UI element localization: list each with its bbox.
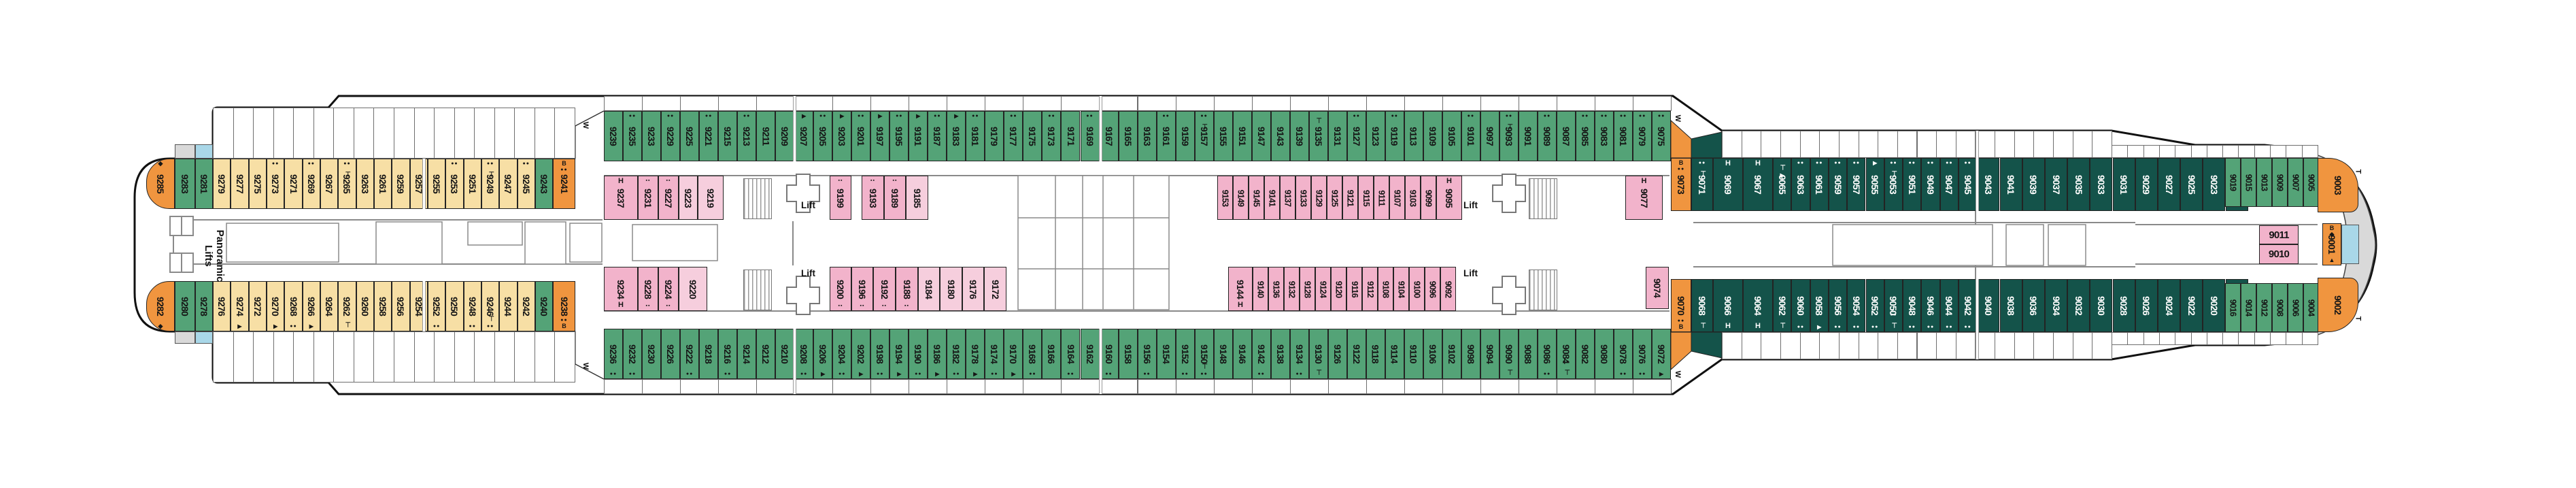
cabin-9103: 9103 (1405, 176, 1421, 220)
balcony-cell (2159, 145, 2175, 158)
cabin-9179: 9179 (985, 111, 1004, 161)
balcony-cell (2053, 332, 2073, 359)
cabin-9146: 9146 (1233, 329, 1252, 379)
tender-label: T (2354, 316, 2362, 321)
cabin-9218: 9218 (699, 329, 718, 379)
balcony-cell (1995, 131, 2015, 158)
wheelchair-access-label: W (581, 363, 590, 370)
balcony-cell (1252, 379, 1291, 394)
cabin-9273: ●●9273 (267, 159, 284, 209)
balcony-cell (2191, 332, 2207, 345)
balcony-cell (1936, 332, 1956, 359)
cabin-9241: B●●9241 (553, 159, 575, 209)
balcony-cell (1917, 332, 1937, 359)
cabin-9004: 9004 (2303, 283, 2319, 332)
cabin-9036: 9036 (2022, 279, 2045, 332)
cabin-9137: 9137 (1280, 176, 1295, 220)
balcony-cell (454, 331, 475, 383)
cabin-9250: 9250 (445, 281, 463, 331)
cabin-9271: 9271 (284, 159, 302, 209)
cabin-9196: ▪▪9196 (851, 267, 873, 311)
cabin-9234: H9234 (604, 267, 638, 311)
cabin-9269: ●●9269 (303, 159, 320, 209)
balcony-cell (680, 96, 719, 111)
cabin-9243: 9243 (535, 159, 553, 209)
cabin-9047: ●●9047 (1940, 158, 1959, 211)
balcony-cell (2222, 332, 2239, 345)
cabin-9242: 9242 (518, 281, 535, 331)
cabin-9265: ●●⊢9265 (338, 159, 356, 209)
cabin-9062: ⊢9062 (1773, 279, 1791, 332)
cabin-9143: 9143 (1271, 111, 1290, 161)
cabin-9215: 9215 (718, 111, 737, 161)
cabin-9263: 9263 (356, 159, 374, 209)
lift-label: Lift (801, 200, 815, 210)
balcony-cell (273, 108, 294, 159)
balcony-cell (2302, 145, 2318, 158)
cabin-9149: 9149 (1233, 176, 1249, 220)
balcony-cell (354, 331, 375, 383)
balcony-cell (2207, 145, 2223, 158)
balcony-cell (2191, 145, 2207, 158)
cabin-9252: ●●9252 (428, 281, 445, 331)
balcony-cell (1936, 131, 1956, 158)
balcony-cell (604, 96, 643, 111)
cabin-9272: 9272 (249, 281, 267, 331)
cabin-9224: ▪▪9224 (658, 267, 679, 311)
balcony-cell (1800, 131, 1820, 158)
balcony-cell (1442, 379, 1481, 394)
balcony-cell (1480, 96, 1519, 111)
cabin-9118: 9118 (1366, 329, 1385, 379)
cabin-9056: ●●9056 (1829, 279, 1847, 332)
balcony-cell (273, 331, 294, 383)
cabin-9151: 9151 (1233, 111, 1252, 161)
balcony-cell (233, 108, 254, 159)
cabin-9100: 9100 (1409, 267, 1425, 311)
cabin-9073: B●●9073 (1671, 158, 1691, 211)
cabin-9066: H9066 (1713, 279, 1743, 332)
balcony-cell (2302, 332, 2318, 345)
cabin-9154: 9154 (1157, 329, 1176, 379)
balcony-cell (535, 331, 556, 383)
balcony-cell (394, 108, 415, 159)
balcony-cell (414, 331, 435, 383)
wheelchair-access-label: W (1674, 115, 1682, 122)
cabin-9041: 9041 (2000, 158, 2022, 211)
balcony-cell (2092, 131, 2112, 158)
cabin-9052: ●●9052 (1866, 279, 1884, 332)
balcony-cell (1595, 379, 1633, 394)
balcony-cell (454, 108, 475, 159)
cabin-9249: ●●⊢9249 (481, 159, 499, 209)
fire-zone-divider (793, 96, 796, 161)
balcony-cell (1061, 379, 1100, 394)
cabin-9038: 9038 (2000, 279, 2022, 332)
balcony-cell (947, 96, 985, 111)
cabin-9029: 9029 (2135, 158, 2158, 211)
balcony-cell (1761, 332, 1781, 359)
balcony-cell (373, 331, 394, 383)
cabin-9020: 9020 (2203, 279, 2225, 332)
balcony-cell (213, 331, 234, 383)
cabin-9131: 9131 (1328, 111, 1347, 161)
cabin-9227: ▪▪9227 (658, 176, 679, 220)
cabin-9089: ●●9089 (1538, 111, 1557, 161)
cabin-9239: 9239 (604, 111, 623, 161)
balcony-cell (2143, 145, 2160, 158)
balcony-cell (2127, 332, 2143, 345)
balcony-cell (2286, 145, 2302, 158)
cabin-9140: 9140 (1253, 267, 1268, 311)
cabin-9059: ●●9059 (1829, 158, 1847, 211)
cabin-9037: 9037 (2045, 158, 2067, 211)
cabin-9065: ⊢▶9065 (1773, 158, 1791, 211)
cabin-9077: H9077 (1625, 176, 1663, 220)
cabin-9124: 9124 (1315, 267, 1331, 311)
cabin-9199: ▪▪9199 (830, 176, 851, 220)
balcony-cell (293, 108, 314, 159)
fire-zone-divider (1099, 329, 1102, 394)
balcony-cell (1633, 379, 1672, 394)
cabin-9115: 9115 (1358, 176, 1374, 220)
cabin-9113: 9113 (1404, 111, 1423, 161)
balcony-cell (253, 108, 274, 159)
balcony-cell (1252, 96, 1291, 111)
cabin-9024: 9024 (2158, 279, 2180, 332)
cabin-9005: 9005 (2303, 158, 2319, 207)
cabin-9016: 9016 (2225, 283, 2241, 332)
cabin-9285: ◆9285 (146, 159, 175, 209)
balcony-cell (535, 108, 556, 159)
cabin-9109: 9109 (1423, 111, 1442, 161)
balcony-cell (1366, 96, 1405, 111)
cabin-9015: 9015 (2241, 158, 2256, 207)
balcony-cell (870, 96, 909, 111)
ship-hull-graphics (0, 0, 2576, 488)
balcony-cell (1328, 96, 1367, 111)
cabin-9006: 9006 (2288, 283, 2303, 332)
cabin-9168: ●●9168 (1023, 329, 1042, 379)
cabin-9136: 9136 (1268, 267, 1284, 311)
balcony-cell (434, 108, 455, 159)
cabin-9207: ▶9207 (794, 111, 813, 161)
cabin-9190: ●●9190 (909, 329, 928, 379)
balcony-cell (1480, 379, 1519, 394)
fire-zone-divider (422, 159, 426, 209)
cabin-9060: ●●9060 (1791, 279, 1810, 332)
cabin-9105: 9105 (1442, 111, 1461, 161)
cabin-9129: 9129 (1311, 176, 1327, 220)
balcony-cell (434, 331, 455, 383)
cabin-9101: ●●9101 (1461, 111, 1480, 161)
cabin-9075: ●●9075 (1652, 111, 1671, 161)
cabin-9095: H9095 (1436, 176, 1462, 220)
cabin-9044: ●●9044 (1940, 279, 1959, 332)
cabin-9150: ⊢●●9150 (1195, 329, 1214, 379)
cabin-9270: ▶9270 (267, 281, 284, 331)
cabin-9280: 9280 (175, 281, 195, 331)
cabin-9211: 9211 (756, 111, 775, 161)
cabin-9099: 9099 (1421, 176, 1436, 220)
cabin-9256: 9256 (392, 281, 409, 331)
balcony-cell (2238, 332, 2254, 345)
cabin-9194: ▶9194 (889, 329, 909, 379)
cabin-9245: ●●9245 (518, 159, 535, 209)
panoramic-lifts-label: Panoramic Lifts (194, 214, 226, 298)
balcony-cell (2222, 145, 2239, 158)
fire-zone-divider (1976, 279, 1979, 359)
balcony-cell (1878, 332, 1898, 359)
cabin-9255: 9255 (428, 159, 445, 209)
balcony-cell (2033, 131, 2054, 158)
cabin-9201: ●●9201 (851, 111, 870, 161)
balcony-cell (756, 96, 795, 111)
balcony-cell (1519, 96, 1557, 111)
cabin-9139: 9139 (1290, 111, 1309, 161)
cabin-9032: 9032 (2067, 279, 2090, 332)
cabin-9282: ◆9282 (146, 281, 175, 331)
balcony-cell (514, 331, 535, 383)
special-cell (195, 144, 213, 159)
cabin-9229: ●●9229 (661, 111, 680, 161)
cabin-9156: ●●9156 (1138, 329, 1157, 379)
cabin-9063: ●●9063 (1791, 158, 1810, 211)
balcony-cell (494, 331, 515, 383)
cabin-9061: ●●9061 (1810, 158, 1829, 211)
balcony-cell (2127, 145, 2143, 158)
cabin-9219: 9219 (698, 176, 724, 220)
cabin-9035: 9035 (2067, 158, 2090, 211)
cabin-9027: 9027 (2158, 158, 2180, 211)
balcony-cell (333, 108, 354, 159)
balcony-cell (1214, 379, 1253, 394)
balcony-cell (985, 96, 1023, 111)
balcony-cell (1442, 96, 1481, 111)
cabin-9012: 9012 (2256, 283, 2272, 332)
cabin-9183: ▶9183 (947, 111, 966, 161)
balcony-cell (1839, 332, 1859, 359)
balcony-cell (293, 331, 314, 383)
cabin-9261: 9261 (374, 159, 392, 209)
cabin-9170: ▶9170 (1004, 329, 1023, 379)
balcony-cell (1023, 96, 1062, 111)
cabin-9130: ⊢9130 (1309, 329, 1328, 379)
cabin-9126: 9126 (1328, 329, 1347, 379)
cabin-9127: ●●9127 (1347, 111, 1366, 161)
cabin-9087: 9087 (1557, 111, 1576, 161)
cabin-9043: 9043 (1977, 158, 1999, 211)
cabin-9210: 9210 (775, 329, 794, 379)
cabin-9008: 9008 (2272, 283, 2288, 332)
balcony-cell (870, 379, 909, 394)
cabin-9147: 9147 (1252, 111, 1271, 161)
cabin-9246: ⊢●●9246 (481, 281, 499, 331)
balcony-cell (2175, 145, 2191, 158)
cabin-9114: 9114 (1385, 329, 1404, 379)
cabin-9025: 9025 (2180, 158, 2203, 211)
cabin-9172: 9172 (984, 267, 1006, 311)
cabin-9163: 9163 (1138, 111, 1157, 161)
cabin-9267: 9267 (320, 159, 338, 209)
balcony-cell (2112, 332, 2128, 345)
cabin-9057: ●●9057 (1847, 158, 1865, 211)
balcony-cell (2286, 332, 2302, 345)
balcony-cell (1328, 379, 1367, 394)
balcony-cell (794, 96, 833, 111)
cabin-9030: 9030 (2090, 279, 2112, 332)
cabin-9067: H9067 (1743, 158, 1773, 211)
cabin-9014: 9014 (2241, 283, 2256, 332)
cabin-9070: ●●B9070 (1671, 279, 1691, 332)
balcony-cell (354, 108, 375, 159)
cabin-9184: 9184 (918, 267, 940, 311)
balcony-cell (2014, 332, 2035, 359)
cabin-9148: 9148 (1214, 329, 1233, 379)
cabin-9281: 9281 (195, 159, 213, 209)
cabin-9208: ●●9208 (794, 329, 813, 379)
cabin-9198: ●●9198 (870, 329, 889, 379)
balcony-cell (642, 379, 681, 394)
cabin-9002: 9002 (2318, 278, 2358, 332)
cabin-9081: ●●9081 (1614, 111, 1633, 161)
balcony-cell (494, 108, 515, 159)
cabin-9175: 9175 (1023, 111, 1042, 161)
cabin-9169: ●●9169 (1081, 111, 1100, 161)
balcony-cell (1404, 96, 1443, 111)
cabin-9079: ●●9079 (1633, 111, 1652, 161)
cabin-9091: 9091 (1519, 111, 1538, 161)
cabin-9236: ●●9236 (604, 329, 623, 379)
cabin-9171: 9171 (1061, 111, 1080, 161)
cabin-9094: 9094 (1480, 329, 1499, 379)
cabin-9145: 9145 (1249, 176, 1264, 220)
balcony-cell (2073, 131, 2093, 158)
cabin-9107: 9107 (1389, 176, 1405, 220)
cabin-9085: ●●9085 (1576, 111, 1595, 161)
cabin-9134: ●●9134 (1290, 329, 1309, 379)
balcony-cell (832, 379, 871, 394)
balcony-cell (1290, 96, 1329, 111)
balcony-cell (1099, 96, 1138, 111)
cabin-9064: H9064 (1743, 279, 1773, 332)
balcony-cell (1061, 96, 1100, 111)
balcony-cell (2033, 332, 2054, 359)
balcony-cell (554, 331, 575, 383)
cabin-9090: ⊢9090 (1499, 329, 1519, 379)
cabin-9042: ●●9042 (1959, 279, 1977, 332)
tender-label: T (2354, 169, 2362, 174)
cabin-9049: ●●9049 (1921, 158, 1939, 211)
cabin-9050: ●●⊢9050 (1884, 279, 1903, 332)
cabin-9088: 9088 (1519, 329, 1538, 379)
cabin-9144: H9144 (1228, 267, 1253, 311)
cabin-9165: 9165 (1119, 111, 1138, 161)
cabin-9001: B◆▲9001 (2322, 223, 2341, 265)
cabin-9253: ●●9253 (445, 159, 463, 209)
balcony-cell (2270, 332, 2286, 345)
balcony-cell (253, 331, 274, 383)
balcony-cell (514, 108, 535, 159)
balcony-cell (680, 379, 719, 394)
cabin-9072: ▶9072 (1652, 329, 1671, 379)
balcony-cell (756, 379, 795, 394)
cabin-9084: ●●⊢9084 (1557, 329, 1576, 379)
cabin-9155: 9155 (1214, 111, 1233, 161)
cabin-9033: 9033 (2090, 158, 2112, 211)
lift-label: Lift (1463, 268, 1478, 278)
balcony-cell (1859, 131, 1879, 158)
cabin-9232: ●●9232 (623, 329, 642, 379)
cabin-9013: 9013 (2256, 158, 2272, 207)
cabin-9197: ▶9197 (870, 111, 889, 161)
cabin-9223: 9223 (679, 176, 698, 220)
balcony-cell (213, 108, 234, 159)
balcony-cell (313, 331, 335, 383)
cabin-9007: 9007 (2288, 158, 2303, 207)
cabin-9221: ●●9221 (699, 111, 718, 161)
balcony-cell (1023, 379, 1062, 394)
wheelchair-access-label: W (1674, 371, 1682, 378)
special-cell (195, 331, 213, 344)
cabin-9268: ●●9268 (284, 281, 302, 331)
balcony-cell (718, 96, 757, 111)
cabin-9195: ●●9195 (889, 111, 909, 161)
cabin-9098: 9098 (1461, 329, 1480, 379)
cabin-9106: 9106 (1423, 329, 1442, 379)
cabin-9181: ●●9181 (966, 111, 985, 161)
cabin-9009: 9009 (2272, 158, 2288, 207)
balcony-cell (1557, 379, 1595, 394)
cabin-9220: 9220 (679, 267, 707, 311)
cabin-9186: ▶9186 (928, 329, 947, 379)
cabin-9138: 9138 (1271, 329, 1290, 379)
balcony-cell (333, 331, 354, 383)
cabin-9247: 9247 (499, 159, 517, 209)
cabin-9214: 9214 (737, 329, 756, 379)
cabin-9046: ●●9046 (1921, 279, 1939, 332)
deck-plan: ◆928592839281927992779275●●92739271●●926… (0, 0, 2576, 488)
special-cell (2341, 225, 2359, 264)
cabin-9177: ●●9177 (1004, 111, 1023, 161)
cabin-9019: 9019 (2225, 158, 2241, 207)
cabin-9135: ⊢9135 (1309, 111, 1328, 161)
cabin-9213: ●●9213 (737, 111, 756, 161)
cabin-9225: 9225 (680, 111, 699, 161)
cabin-9244: 9244 (499, 281, 517, 331)
cabin-9166: 9166 (1042, 329, 1061, 379)
balcony-cell (718, 379, 757, 394)
cabin-9200: ▪▪9200 (830, 267, 851, 311)
cabin-9187: ●●9187 (928, 111, 947, 161)
cabin-9097: 9097 (1480, 111, 1499, 161)
cabin-9080: 9080 (1595, 329, 1614, 379)
cabin-9231: ▪▪9231 (638, 176, 658, 220)
cabin-9209: 9209 (775, 111, 794, 161)
balcony-cell (1897, 332, 1918, 359)
cabin-9283: 9283 (175, 159, 195, 209)
special-cell (175, 331, 195, 344)
cabin-9108: 9108 (1378, 267, 1393, 311)
cabin-9058: ▶9058 (1810, 279, 1829, 332)
balcony-cell (394, 331, 415, 383)
cabin-9203: ▶9203 (832, 111, 851, 161)
balcony-cell (1995, 332, 2015, 359)
cabin-9086: ●●9086 (1538, 329, 1557, 379)
balcony-cell (909, 96, 947, 111)
balcony-cell (1878, 131, 1898, 158)
cabin-9216: ●●9216 (718, 329, 737, 379)
